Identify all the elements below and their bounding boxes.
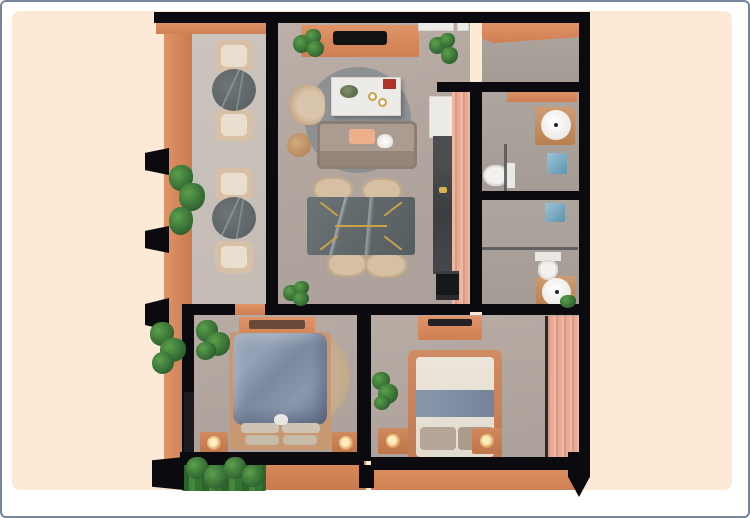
hedge-overlay-blobs xyxy=(186,455,264,491)
bedroom1-pillow-1 xyxy=(241,423,279,433)
wall-balcony-living-divider xyxy=(266,14,278,306)
living-plant-top-left xyxy=(293,29,325,59)
white-cat-on-sofa xyxy=(377,134,393,148)
wall-mid-left xyxy=(182,304,235,315)
kitchen-counter-items xyxy=(439,187,447,193)
oven xyxy=(436,271,459,300)
fridge-cabinet xyxy=(429,96,453,138)
bedroom1-door-threshold xyxy=(235,304,265,315)
bedroom1-lamp-left xyxy=(207,436,221,450)
bedroom1-duvet xyxy=(233,333,327,425)
terrace-planter-upper xyxy=(167,165,207,237)
bathroom2-shower-mat xyxy=(545,203,565,222)
wall-bedroom-divider xyxy=(357,315,371,461)
bedroom1-pillow-2 xyxy=(282,423,320,433)
bedroom1-dresser-top xyxy=(249,320,305,329)
terrace-chair-2 xyxy=(215,109,253,141)
tv xyxy=(333,31,387,45)
wall-right-outer xyxy=(579,12,590,460)
bedroom2-plant-left xyxy=(372,372,398,410)
living-plant-top-right xyxy=(429,33,459,65)
bedroom2-bed-runner xyxy=(416,390,494,417)
terrace-planter-lower xyxy=(150,322,188,374)
sofa-peach-pillow xyxy=(349,129,375,144)
bedroom1-white-cat-logo xyxy=(274,414,288,425)
chair-cushion xyxy=(221,45,248,67)
wall-top xyxy=(154,12,590,23)
wall-kitchen-bath-divider xyxy=(470,84,482,312)
bedroom2-lamp-left xyxy=(386,434,400,448)
bathroom1-basin-drain xyxy=(554,123,558,127)
bedroom1-lamp-right xyxy=(339,436,353,450)
screenshot-canvas xyxy=(0,0,750,518)
bathroom1-shower-mat xyxy=(547,153,567,174)
island-decor-stone xyxy=(340,85,358,98)
bathroom2-basin-drain xyxy=(555,290,559,294)
island-plate-1 xyxy=(368,92,377,101)
living-plant-bottom-left xyxy=(283,281,311,307)
bedroom2-lamp-right xyxy=(480,434,494,448)
bathroom1-shower-deck xyxy=(504,144,579,191)
terrace-chair-3 xyxy=(215,168,253,200)
terrace-chair-4 xyxy=(215,241,253,273)
wall-between-bathrooms xyxy=(482,191,579,200)
island-decor-red-book xyxy=(383,79,396,89)
wall-bottom-left-block xyxy=(152,457,184,490)
wicker-armchair xyxy=(289,85,325,125)
chair-cushion xyxy=(221,173,248,195)
bathroom1-toilet-tank xyxy=(506,163,515,188)
dining-table-gold-inlay-h xyxy=(335,225,387,227)
round-side-table xyxy=(287,133,311,157)
terrace-table-1 xyxy=(212,69,256,111)
bedroom1-window xyxy=(184,392,194,452)
chair-cushion xyxy=(221,246,248,268)
bathroom2-shower-glass xyxy=(482,247,578,250)
wall-bottom-right-point xyxy=(568,452,590,497)
bathroom2-toilet-bowl xyxy=(538,260,558,280)
bedroom1-pillow-3 xyxy=(245,435,279,445)
terrace-chair-1 xyxy=(215,40,253,72)
wall-rear-balcony-stub xyxy=(359,465,374,488)
terrace-table-2 xyxy=(212,197,256,239)
chair-cushion xyxy=(221,114,248,136)
bedroom1-pillow-4 xyxy=(283,435,317,445)
wall-entry-bottom xyxy=(437,82,579,92)
island-plate-2 xyxy=(378,98,387,107)
wall-bedroom2-bottom xyxy=(371,457,579,470)
bedroom2-pillow-left xyxy=(420,427,456,450)
bathroom2-plant xyxy=(560,295,576,308)
dining-chair-4 xyxy=(365,252,407,278)
bedroom2-console-tv xyxy=(428,319,472,326)
bedroom2-wardrobe xyxy=(545,316,581,460)
bathroom1-shower-glass xyxy=(504,144,507,191)
bedroom1-plant-corner xyxy=(196,320,230,360)
